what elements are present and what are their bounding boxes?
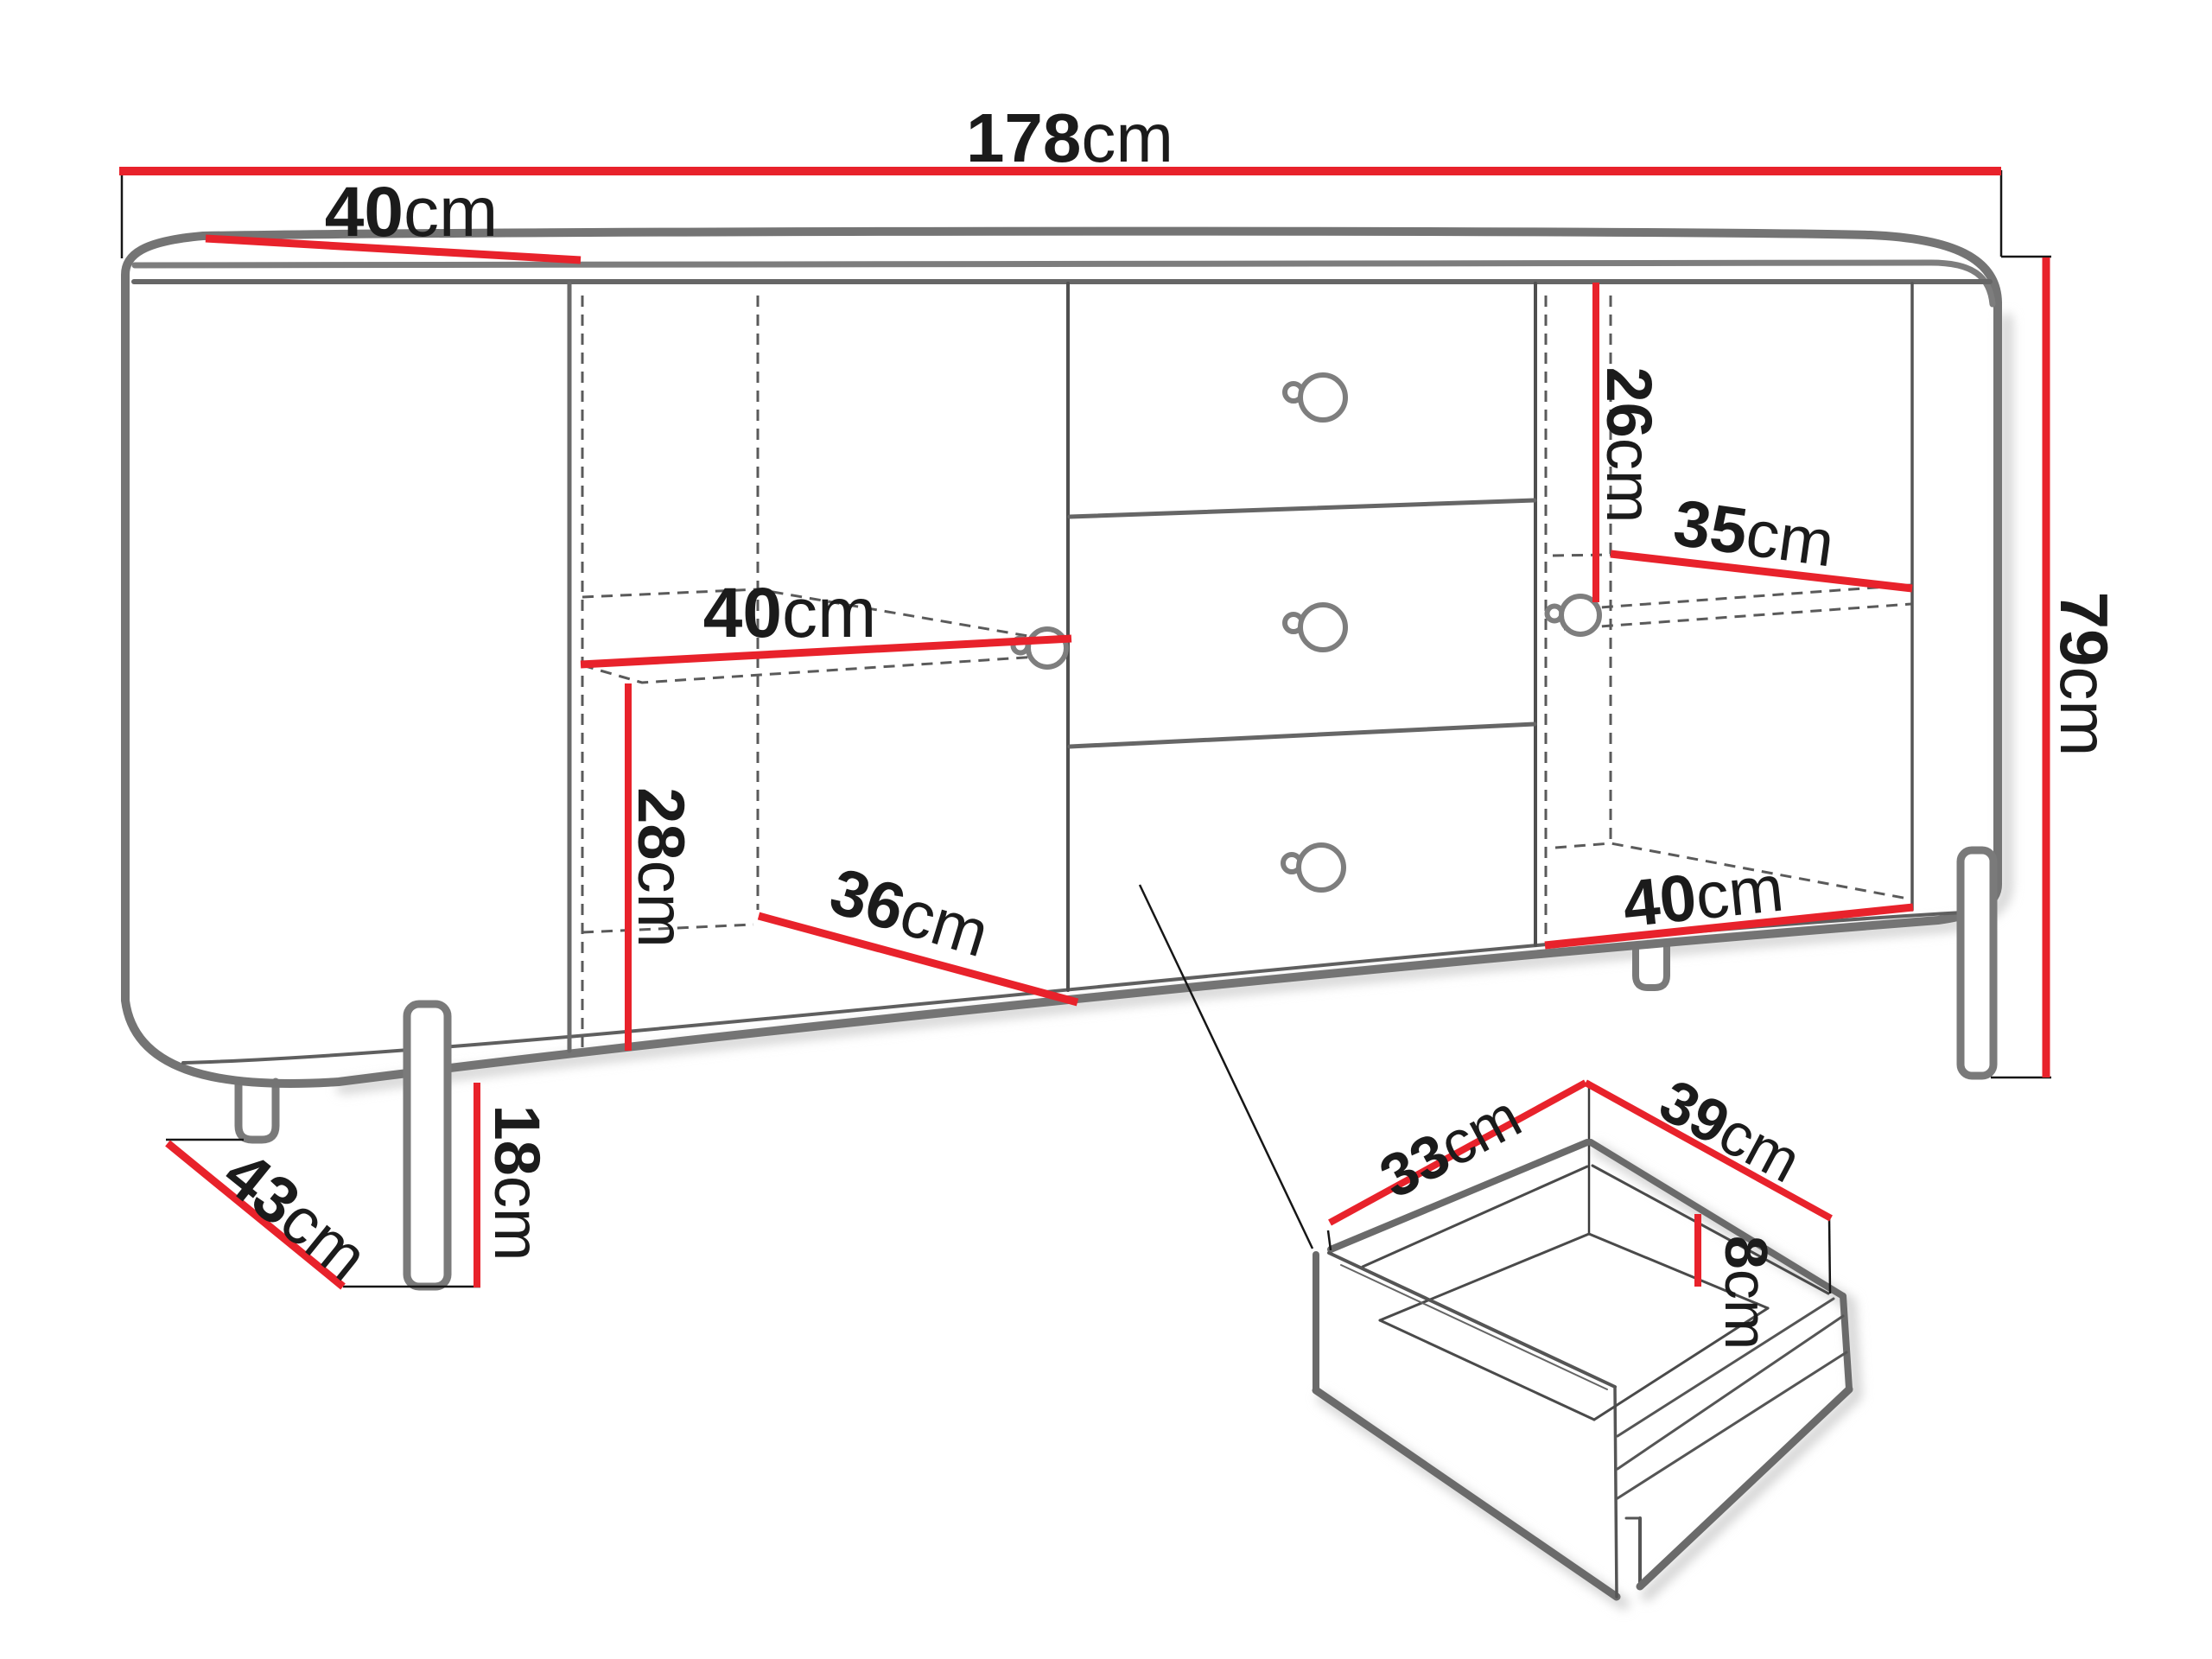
svg-text:178cm: 178cm [966,99,1173,176]
svg-text:79cm: 79cm [2046,592,2122,757]
svg-text:28cm: 28cm [624,787,697,948]
svg-text:26cm: 26cm [1593,367,1665,524]
svg-text:40cm: 40cm [703,574,877,652]
svg-text:40cm: 40cm [325,173,499,251]
svg-text:8cm: 8cm [1713,1236,1780,1350]
svg-text:18cm: 18cm [481,1105,553,1262]
